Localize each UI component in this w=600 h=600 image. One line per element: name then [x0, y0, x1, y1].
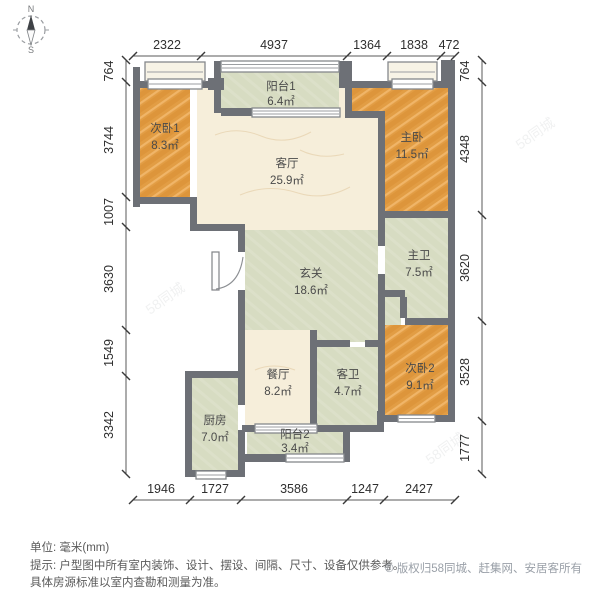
compass: N S: [13, 4, 49, 55]
dim-bottom-3: 1247: [351, 482, 379, 496]
compass-south-label: S: [28, 45, 34, 55]
dim-right-1: 4348: [458, 135, 472, 163]
entry-door-leaf: [212, 252, 219, 290]
dim-left-4: 1549: [102, 339, 116, 367]
watermark-text: 58同城: [143, 279, 188, 317]
footer-tip-line1: 提示: 户型图中所有室内装饰、设计、摆设、间隔、尺寸、设备仅供参考。: [30, 558, 404, 572]
label-dining: 餐厅: [267, 367, 290, 381]
dim-top-1: 4937: [260, 38, 288, 52]
dim-top-3: 1838: [400, 38, 428, 52]
area-bedroom1: 8.3㎡: [151, 139, 179, 152]
dim-right: 764 4348 3620 3528 1777: [458, 56, 486, 478]
dim-top: 2322 4937 1364 1838 472: [129, 38, 459, 60]
floorplan-canvas: 次卧1 8.3㎡ 阳台1 6.4㎡ 主卧 11.5㎡ 客厅 25.9㎡ 玄关 1…: [0, 0, 600, 600]
dim-bottom-4: 2427: [405, 482, 433, 496]
label-balcony1: 阳台1: [266, 79, 295, 93]
area-living: 25.9㎡: [270, 174, 304, 187]
dim-top-2: 1364: [353, 38, 381, 52]
label-master-bedroom: 主卧: [401, 131, 424, 144]
footer-unit-line: 单位: 毫米(mm): [30, 540, 109, 554]
area-balcony1: 6.4㎡: [267, 95, 295, 108]
compass-north-label: N: [28, 4, 35, 14]
label-bedroom1: 次卧1: [150, 121, 179, 135]
label-balcony2: 阳台2: [280, 427, 309, 441]
dim-left-2: 1007: [102, 198, 116, 226]
label-guest-bath: 客卫: [337, 367, 360, 381]
balcony1-glass: [221, 61, 339, 72]
dim-bottom-0: 1946: [147, 482, 175, 496]
entry-door: [212, 252, 245, 290]
area-dining: 8.2㎡: [264, 385, 292, 398]
label-kitchen: 厨房: [204, 414, 227, 427]
label-master-bath: 主卫: [408, 249, 431, 262]
dim-right-0: 764: [458, 61, 472, 82]
dim-left-3: 3630: [102, 265, 116, 293]
dim-left: 764 3744 1007 3630 1549 3342: [102, 56, 130, 478]
dim-bottom: 1946 1727 3586 1247 2427: [129, 482, 459, 504]
dim-left-1: 3744: [102, 126, 116, 154]
dim-bottom-2: 3586: [280, 482, 308, 496]
label-hallway: 玄关: [300, 266, 323, 280]
dim-right-3: 3528: [458, 358, 472, 386]
area-guest-bath: 4.7㎡: [334, 385, 362, 398]
area-bedroom2: 9.1㎡: [406, 379, 434, 392]
footer: 单位: 毫米(mm) 提示: 户型图中所有室内装饰、设计、摆设、间隔、尺寸、设备…: [30, 540, 582, 589]
compass-needle-south: [27, 30, 35, 45]
room-hallway: [245, 230, 378, 330]
label-living: 客厅: [276, 156, 299, 170]
area-balcony2: 3.4㎡: [281, 442, 309, 455]
room-hallway-notch: [383, 295, 401, 325]
dim-top-4: 472: [439, 38, 460, 52]
floorplan-page: 次卧1 8.3㎡ 阳台1 6.4㎡ 主卧 11.5㎡ 客厅 25.9㎡ 玄关 1…: [0, 0, 600, 600]
dim-left-0: 764: [102, 61, 116, 82]
area-master-bath: 7.5㎡: [405, 266, 433, 279]
area-hallway: 18.6㎡: [294, 284, 328, 297]
watermark-text: 58同城: [513, 114, 558, 152]
living-balcony-slider: [252, 108, 340, 117]
compass-needle-north: [27, 15, 35, 30]
footer-tip-line2: 具体房源标准以室内查勘和测量为准。: [30, 575, 226, 589]
label-bedroom2: 次卧2: [405, 361, 434, 375]
dim-bottom-1: 1727: [201, 482, 229, 496]
area-master-bedroom: 11.5㎡: [395, 148, 429, 161]
area-kitchen: 7.0㎡: [201, 431, 229, 444]
dim-left-5: 3342: [102, 411, 116, 439]
footer-copyright: © 版权归58同城、赶集网、安居客所有: [385, 561, 582, 575]
dim-top-0: 2322: [153, 38, 181, 52]
dim-right-2: 3620: [458, 254, 472, 282]
